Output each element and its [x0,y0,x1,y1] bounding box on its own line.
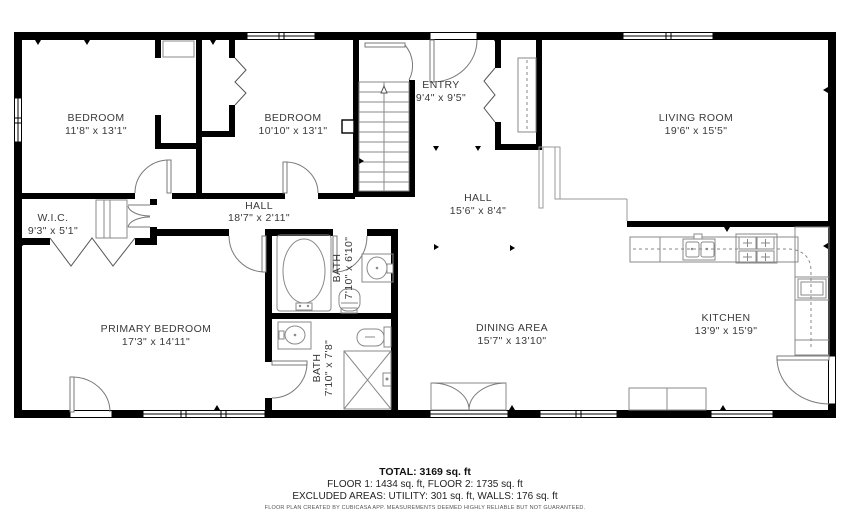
footer: TOTAL: 3169 sq. ft FLOOR 1: 1434 sq. ft,… [265,466,586,511]
window-bedroom2-top [247,33,315,40]
sink-bath-upper-icon [362,254,393,282]
kitchen-sink-icon [683,234,715,260]
threshold-kitchen-exterior-door [829,356,836,404]
room-dims-kitchen: 13'9" x 15'9" [695,325,758,337]
bathtub-icon [277,235,331,311]
threshold-primary-exterior-door [70,411,112,418]
closet-shelf-wic [96,200,127,238]
window-primary-bottom [143,411,265,418]
sink-bath-lower-icon [278,322,311,349]
threshold-french-doors [430,411,508,418]
floor-plan: BEDROOM 11'8" x 13'1" BEDROOM 10'10" x 1… [0,0,850,520]
bifold-wic [50,238,135,266]
stair-opening-outline [539,147,627,221]
door-primary-exterior [70,377,110,412]
door-bedroom1 [135,160,171,193]
door-kitchen-exterior [777,356,829,404]
room-label-wic: W.I.C. [38,212,69,224]
room-label-bedroom-2: BEDROOM [264,112,321,124]
room-dims-living-room: 19'6" x 15'5" [665,125,728,137]
room-label-hall-upper: HALL [245,200,273,212]
room-label-living-room: LIVING ROOM [659,112,733,124]
footer-total: TOTAL: 3169 sq. ft [379,466,471,478]
room-label-primary-bedroom: PRIMARY BEDROOM [101,323,212,335]
room-dims-bedroom-1: 11'8" x 13'1" [65,125,127,137]
door-entry-front [430,40,477,82]
window-bedroom1-left [15,98,22,142]
wardrobe-entry-closet [518,58,536,132]
door-stair-top [365,43,413,80]
door-french-dining [431,383,506,410]
door-wic-double [128,205,150,227]
footer-excluded: EXCLUDED AREAS: UTILITY: 301 sq. ft, WAL… [292,491,558,502]
room-dims-hall-upper: 18'7" x 2'11" [228,212,290,224]
room-dims-wic: 9'3" x 5'1" [28,225,78,237]
room-label-hall-main: HALL [464,192,492,204]
stairs-icon [359,82,409,191]
room-dims-bedroom-2: 10'10" x 13'1" [258,125,327,137]
room-dims-hall-main: 15'6" x 8'4" [450,205,507,217]
room-label-entry: ENTRY [422,79,459,91]
room-dims-primary-bedroom: 17'3" x 14'11" [122,336,190,348]
room-dims-bath-upper: 7'10" x 6'10" [343,237,355,300]
threshold-entry-door [430,33,477,40]
room-label-bedroom-1: BEDROOM [67,112,124,124]
window-kitchen-bottom [711,411,773,418]
bifold-entry-closet [484,68,495,122]
toilet-bath-lower-icon [357,327,391,347]
floor-plan-page: BEDROOM 11'8" x 13'1" BEDROOM 10'10" x 1… [0,0,850,520]
chimney-box [342,120,354,133]
bifold-bedroom2-closet [235,58,246,105]
kitchen-island [629,388,706,410]
door-bath-lower [272,361,307,398]
room-label-dining-area: DINING AREA [476,322,548,334]
shower-icon [344,351,391,409]
room-label-bath-upper: BATH [331,254,343,283]
room-dims-bath-lower: 7'10" x 7'8" [323,340,335,397]
footer-floors: FLOOR 1: 1434 sq. ft, FLOOR 2: 1735 sq. … [327,479,523,490]
footer-disclaimer: FLOOR PLAN CREATED BY CUBICASA APP. MEAS… [265,505,586,511]
room-label-bath-lower: BATH [311,354,323,383]
closet-shelf-bedroom1 [163,41,194,57]
room-dims-entry: 9'4" x 9'5" [416,92,466,104]
window-dining-bottom [540,411,617,418]
room-label-kitchen: KITCHEN [702,312,751,324]
room-dims-dining-area: 15'7" x 13'10" [477,335,546,347]
door-bedroom2 [283,162,318,193]
window-livingroom-top [623,33,713,40]
door-primary-bedroom [229,236,266,272]
